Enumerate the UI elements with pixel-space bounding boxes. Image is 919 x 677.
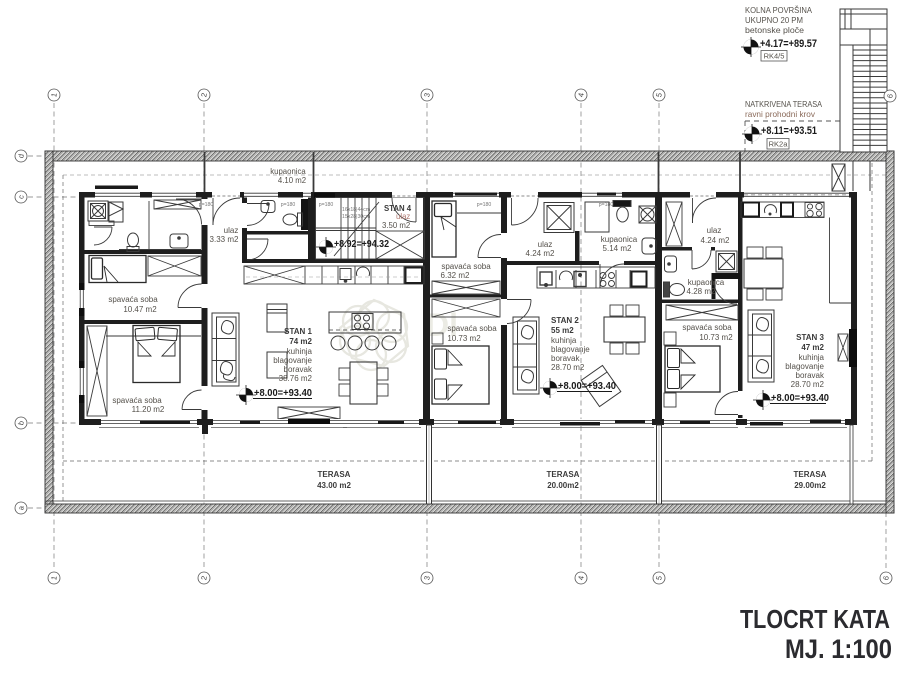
svg-text:+8.92=+94.32: +8.92=+94.32 <box>334 238 389 250</box>
svg-text:TERASA: TERASA <box>794 470 827 479</box>
svg-text:STAN 3: STAN 3 <box>796 333 824 342</box>
svg-text:10.73 m2: 10.73 m2 <box>447 334 481 343</box>
svg-text:TLOCRT KATA: TLOCRT KATA <box>740 604 890 634</box>
svg-text:ulaz: ulaz <box>707 226 722 235</box>
svg-text:TERASA: TERASA <box>318 470 351 479</box>
svg-text:NATKRIVENA TERASA: NATKRIVENA TERASA <box>745 99 822 109</box>
svg-text:47 m2: 47 m2 <box>801 343 824 352</box>
svg-text:spavaća soba: spavaća soba <box>108 295 158 304</box>
svg-text:4.24 m2: 4.24 m2 <box>526 249 555 258</box>
svg-text:+8.00=+93.40: +8.00=+93.40 <box>254 387 312 399</box>
svg-text:74 m2: 74 m2 <box>289 337 312 346</box>
svg-text:+8.11=+93.51: +8.11=+93.51 <box>761 125 817 137</box>
svg-text:ravni prohodni krov: ravni prohodni krov <box>745 109 816 119</box>
svg-text:spavaća soba: spavaća soba <box>447 324 497 333</box>
svg-text:kupaonica: kupaonica <box>270 167 306 176</box>
svg-text:28.70 m2: 28.70 m2 <box>791 380 825 389</box>
svg-text:+4.17=+89.57: +4.17=+89.57 <box>760 38 817 50</box>
svg-text:ulaz: ulaz <box>538 240 553 249</box>
svg-text:p=180: p=180 <box>319 202 334 208</box>
svg-text:ulaz: ulaz <box>224 226 239 235</box>
svg-text:5.14 m2: 5.14 m2 <box>603 244 632 253</box>
svg-text:kuhinja: kuhinja <box>551 336 577 345</box>
svg-text:15x28|30cm: 15x28|30cm <box>342 214 370 220</box>
svg-text:blagovanje: blagovanje <box>551 345 590 354</box>
svg-text:p=180: p=180 <box>599 202 614 208</box>
svg-text:38.76 m2: 38.76 m2 <box>279 374 313 383</box>
svg-text:43.00 m2: 43.00 m2 <box>317 481 351 490</box>
svg-text:p=180: p=180 <box>281 202 296 208</box>
svg-text:10.73 m2: 10.73 m2 <box>699 333 733 342</box>
svg-text:kuhinja: kuhinja <box>287 347 313 356</box>
svg-text:UKUPNO 20 PM: UKUPNO 20 PM <box>745 15 803 25</box>
svg-text:blagovanje: blagovanje <box>785 362 824 371</box>
svg-text:29.00m2: 29.00m2 <box>794 481 826 490</box>
svg-text:4.28 m2: 4.28 m2 <box>687 287 716 296</box>
svg-text:RK4/5: RK4/5 <box>764 52 785 61</box>
svg-text:boravak: boravak <box>796 371 825 380</box>
svg-text:3.50 m2: 3.50 m2 <box>382 221 410 230</box>
svg-text:6.32 m2: 6.32 m2 <box>441 271 470 280</box>
svg-text:+8.00=+93.40: +8.00=+93.40 <box>558 380 616 392</box>
svg-text:p=180: p=180 <box>199 202 214 208</box>
svg-text:spavaća soba: spavaća soba <box>682 323 732 332</box>
svg-text:TERASA: TERASA <box>547 470 580 479</box>
svg-text:spavaća soba: spavaća soba <box>441 262 491 271</box>
svg-text:STAN 2: STAN 2 <box>551 316 579 325</box>
svg-text:kupaonica: kupaonica <box>601 235 638 244</box>
svg-text:ulaz: ulaz <box>396 212 410 221</box>
svg-text:16x18|44cm: 16x18|44cm <box>342 207 370 213</box>
svg-text:20.00m2: 20.00m2 <box>547 481 579 490</box>
svg-text:RK2a: RK2a <box>769 140 789 149</box>
svg-text:MJ. 1:100: MJ. 1:100 <box>785 634 892 664</box>
svg-text:+8.00=+93.40: +8.00=+93.40 <box>771 392 829 404</box>
svg-text:boravak: boravak <box>284 365 313 374</box>
svg-text:10.47 m2: 10.47 m2 <box>123 305 157 314</box>
svg-text:kupaonica: kupaonica <box>688 278 725 287</box>
svg-text:p=180: p=180 <box>477 202 492 208</box>
svg-text:betonske ploče: betonske ploče <box>745 25 804 35</box>
svg-text:4.10 m2: 4.10 m2 <box>278 176 306 185</box>
svg-text:28.70 m2: 28.70 m2 <box>551 363 585 372</box>
svg-text:boravak: boravak <box>551 354 580 363</box>
svg-text:kuhinja: kuhinja <box>799 353 825 362</box>
svg-text:55 m2: 55 m2 <box>551 326 574 335</box>
svg-text:STAN 1: STAN 1 <box>284 327 312 336</box>
svg-text:KOLNA POVRŠINA: KOLNA POVRŠINA <box>745 5 812 15</box>
svg-text:11.20 m2: 11.20 m2 <box>132 405 165 414</box>
svg-text:4.24 m2: 4.24 m2 <box>701 236 730 245</box>
svg-text:blagovanje: blagovanje <box>273 356 312 365</box>
svg-text:spavaća soba: spavaća soba <box>112 396 162 405</box>
svg-text:3.33 m2: 3.33 m2 <box>210 235 239 244</box>
